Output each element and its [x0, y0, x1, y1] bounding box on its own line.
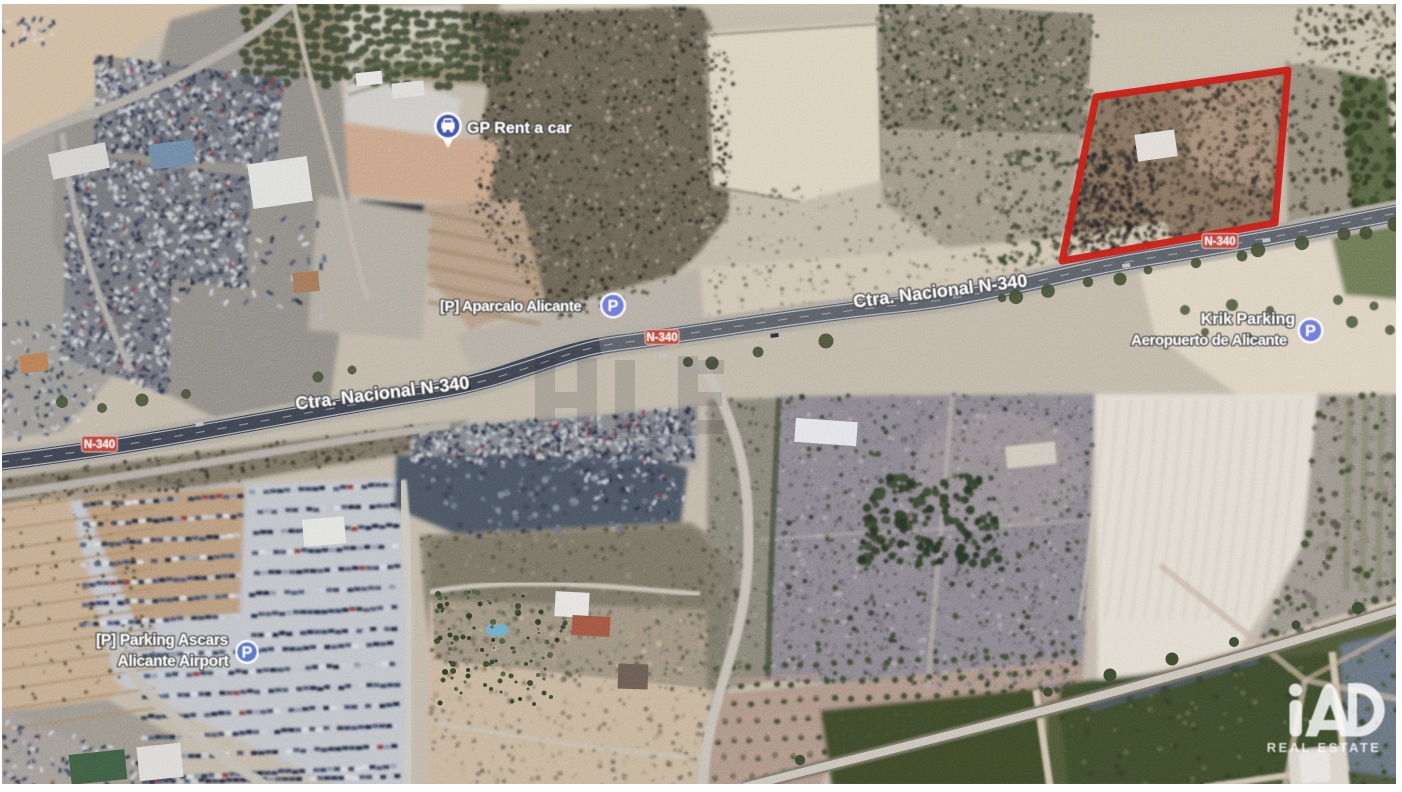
svg-text:N-340: N-340	[646, 332, 677, 344]
svg-text:P: P	[242, 645, 253, 662]
svg-text:GP Rent a car: GP Rent a car	[467, 120, 572, 137]
svg-text:N-340: N-340	[84, 439, 115, 451]
svg-text:Aeropuerto de Alicante: Aeropuerto de Alicante	[1131, 332, 1287, 349]
svg-text:P: P	[1305, 323, 1316, 340]
svg-text:N-340: N-340	[1204, 236, 1235, 248]
svg-text:[P] Aparcalo Alicante: [P] Aparcalo Alicante	[440, 298, 581, 315]
svg-text:REAL ESTATE: REAL ESTATE	[1267, 740, 1382, 755]
svg-text:Krik Parking: Krik Parking	[1201, 311, 1295, 328]
svg-text:Alicante Airport: Alicante Airport	[118, 653, 229, 670]
svg-text:P: P	[608, 298, 619, 315]
svg-text:[P] Parking Ascars: [P] Parking Ascars	[96, 632, 228, 649]
